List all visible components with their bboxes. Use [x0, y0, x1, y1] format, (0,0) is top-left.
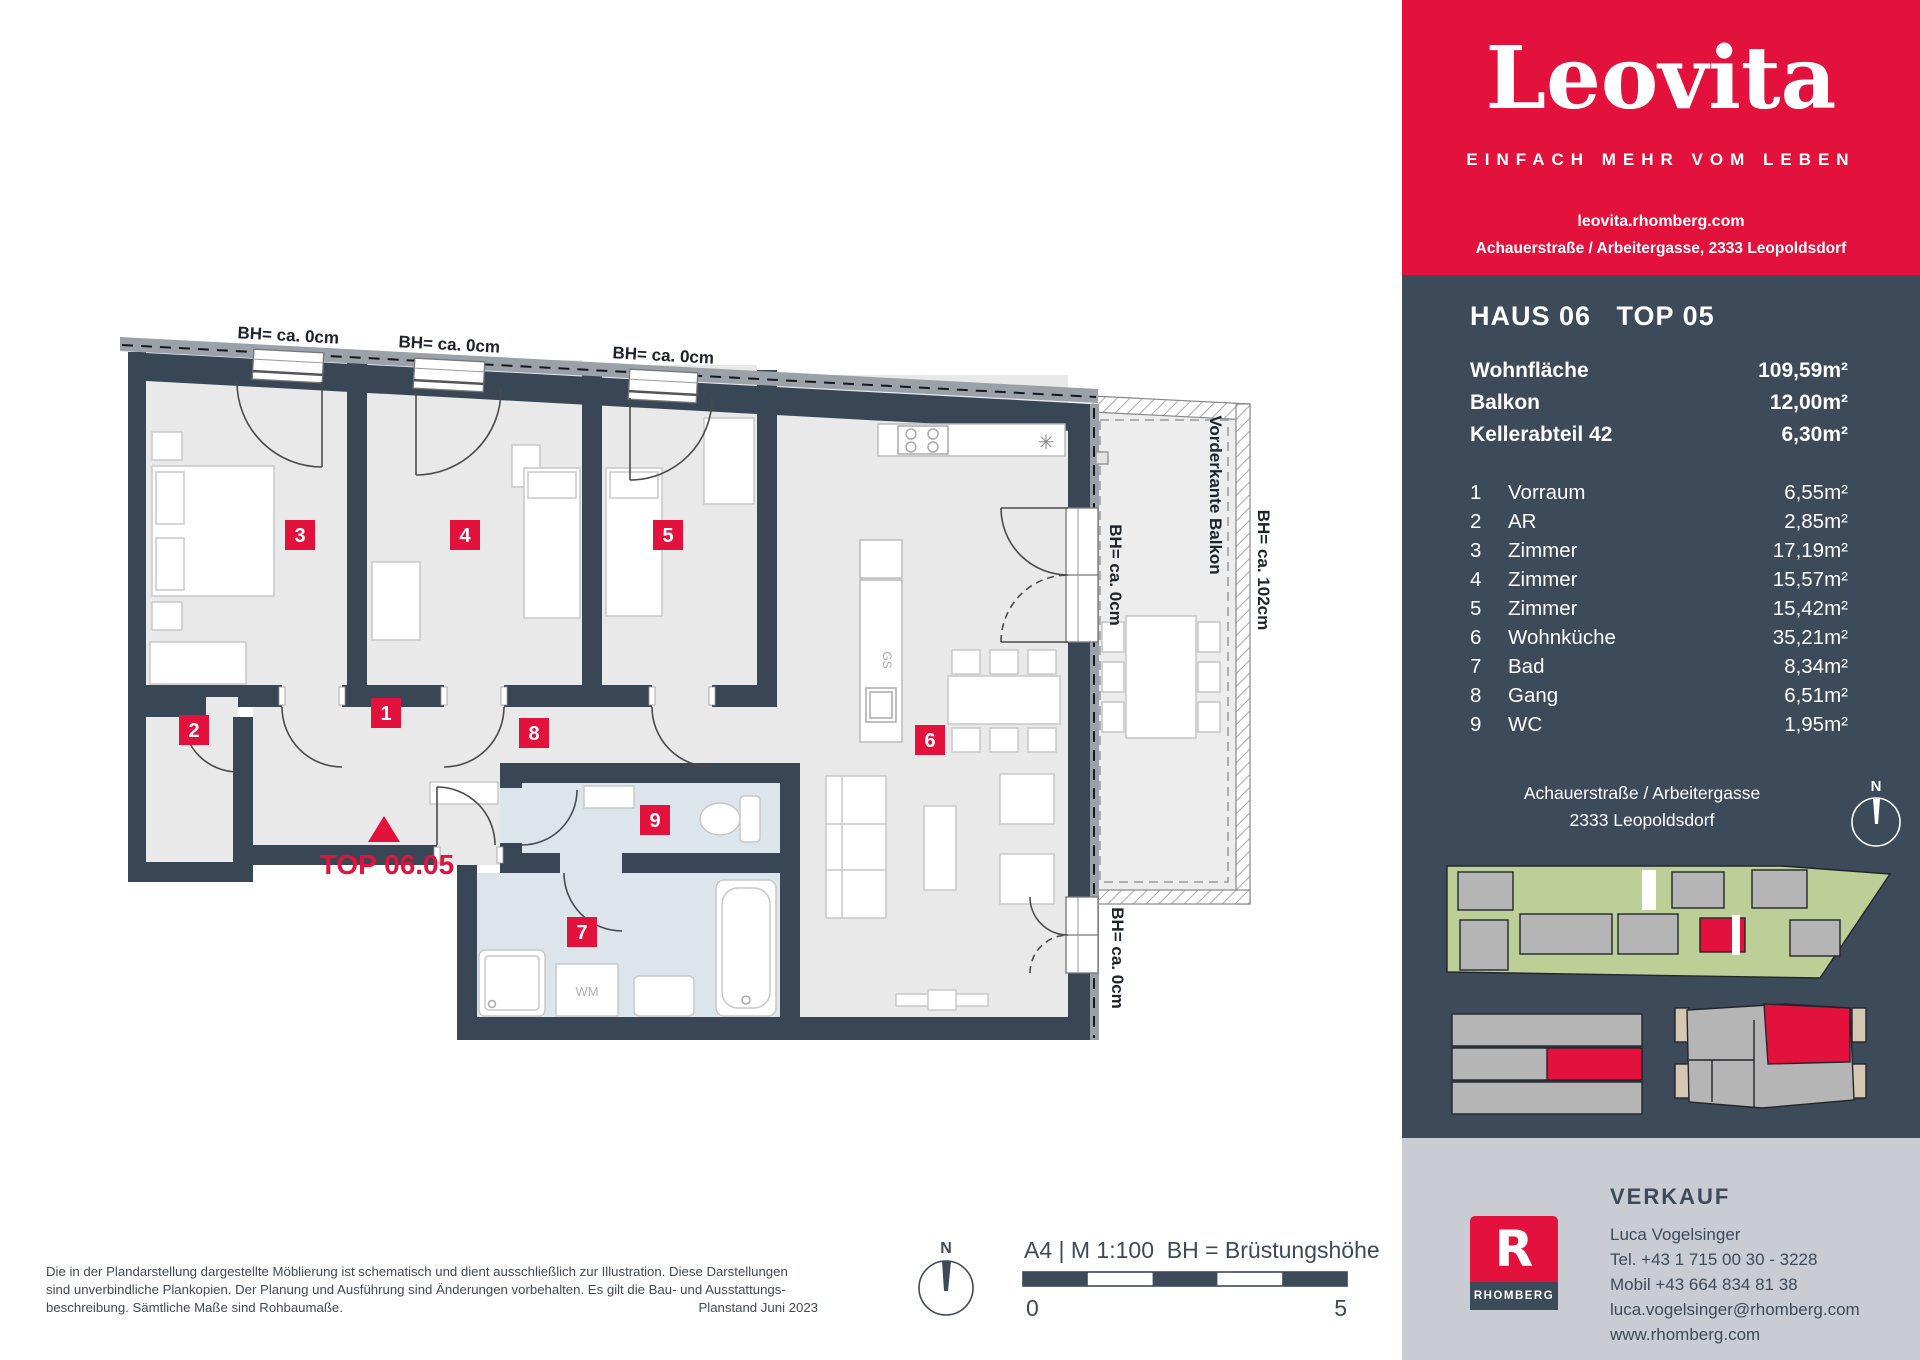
svg-text:5: 5 [662, 525, 673, 547]
scale-title: A4 | M 1:100 BH = Brüstungshöhe [1024, 1237, 1380, 1263]
rhomberg-logo: R RHOMBERG [1470, 1216, 1558, 1312]
sales-email[interactable]: luca.vogelsinger@rhomberg.com [1610, 1297, 1860, 1322]
sales-footer: VERKAUF R RHOMBERG Luca Vogelsinger Tel.… [1402, 1138, 1920, 1360]
disclaimer: Die in der Plandarstellung dargestellte … [46, 1264, 818, 1315]
svg-text:9: 9 [649, 810, 660, 832]
brand-address: Achauerstraße / Arbeitergasse, 2333 Leop… [1402, 240, 1920, 258]
site-plan-graphics: N [1402, 275, 1920, 1138]
svg-text:3: 3 [294, 525, 305, 547]
info-sidebar: Leovita EINFACH MEHR VOM LEBEN leovita.r… [1402, 0, 1920, 1360]
site-plan [1447, 866, 1890, 978]
north-compass: N [919, 1240, 973, 1315]
sidebar-north-label: N [1871, 778, 1882, 795]
balcony-door-lower-label: BH= ca. 0cm [1108, 907, 1127, 1009]
svg-text:Die in der Plandarstellung dar: Die in der Plandarstellung dargestellte … [46, 1264, 788, 1279]
brand-header: Leovita EINFACH MEHR VOM LEBEN leovita.r… [1402, 0, 1920, 275]
balcony-front-label: Vorderkante Balkon [1206, 415, 1225, 574]
sink-symbol: ✳ [1038, 432, 1055, 454]
section-highlighted-floor [1547, 1048, 1642, 1080]
svg-text:6: 6 [924, 730, 935, 752]
svg-text:4: 4 [459, 525, 471, 547]
brand-logo: Leovita [1402, 36, 1920, 122]
svg-text:beschreibung. Sämtliche Maße s: beschreibung. Sämtliche Maße sind Rohbau… [46, 1300, 343, 1315]
sales-tel[interactable]: Tel. +43 1 715 00 30 - 3228 [1610, 1247, 1860, 1272]
brand-tagline: EINFACH MEHR VOM LEBEN [1402, 150, 1920, 170]
scale-end: 5 [1334, 1295, 1347, 1321]
floorplan-sheet: WM GS ✳ BH= ca. 0cm BH= ca. 0cm BH= ca. … [0, 0, 1920, 1360]
building-section-diagram [1435, 1014, 1659, 1114]
sales-name: Luca Vogelsinger [1610, 1222, 1860, 1247]
north-label: N [940, 1240, 952, 1257]
svg-text:sind unverbindliche Plankopien: sind unverbindliche Plankopien. Der Plan… [46, 1282, 786, 1297]
plate-highlighted-unit [1764, 1004, 1850, 1064]
rhomberg-logo-mark: R [1470, 1216, 1558, 1282]
balcony-rail-label: BH= ca. 102cm [1254, 510, 1273, 631]
sales-web[interactable]: www.rhomberg.com [1610, 1322, 1860, 1347]
entrance-label: TOP 06.05 [320, 849, 454, 880]
plan-date: Planstand Juni 2023 [698, 1300, 818, 1315]
svg-text:8: 8 [528, 723, 539, 745]
washing-machine-label: WM [575, 984, 598, 999]
sales-contact: Luca Vogelsinger Tel. +43 1 715 00 30 - … [1610, 1222, 1860, 1347]
floor-plate-diagram [1675, 1004, 1866, 1108]
rhomberg-logo-name: RHOMBERG [1470, 1282, 1558, 1310]
dishwasher-label: GS [880, 651, 894, 668]
svg-text:1: 1 [380, 703, 391, 725]
unit-panel: HAUS 06 TOP 05 Wohnfläche 109,59m² Balko… [1402, 275, 1920, 1138]
svg-text:2: 2 [188, 720, 199, 742]
sidebar-compass: N [1852, 778, 1900, 846]
sales-mobile[interactable]: Mobil +43 664 834 81 38 [1610, 1272, 1860, 1297]
sales-heading: VERKAUF [1610, 1184, 1730, 1210]
scale-bar: A4 | M 1:100 BH = Brüstungshöhe 0 5 [1023, 1237, 1380, 1321]
balcony [1093, 396, 1250, 904]
balcony-door-upper-label: BH= ca. 0cm [1106, 524, 1125, 626]
svg-text:7: 7 [576, 922, 587, 944]
scale-start: 0 [1026, 1295, 1039, 1321]
brand-website[interactable]: leovita.rhomberg.com [1402, 213, 1920, 231]
